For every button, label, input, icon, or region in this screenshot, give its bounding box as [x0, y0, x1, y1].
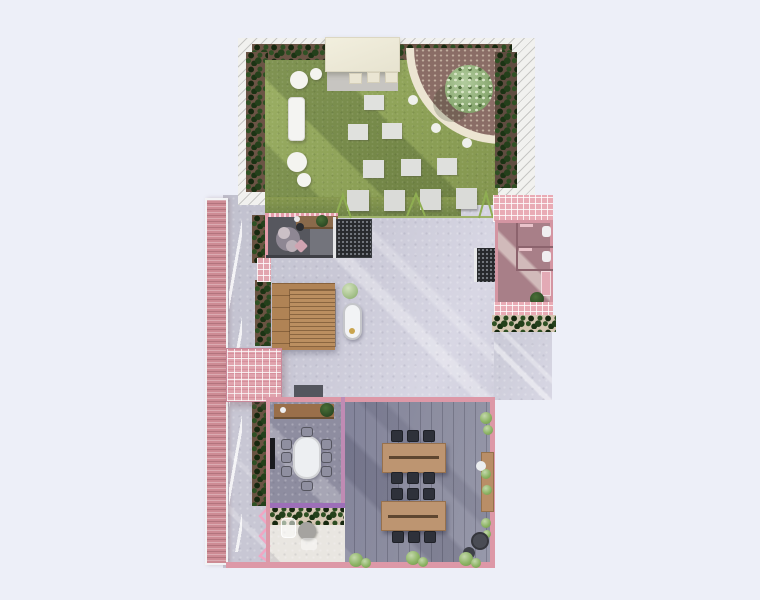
garden-boulder [408, 95, 418, 105]
credenza-ball [280, 407, 286, 413]
stepping-stone [348, 124, 368, 140]
meeting-chair [321, 439, 332, 450]
garden-pouf [290, 71, 308, 89]
toilet [542, 226, 551, 237]
canopy-stool [367, 72, 380, 83]
garden-boulder [462, 138, 472, 148]
meeting-chair [301, 481, 313, 491]
credenza-plant [320, 403, 334, 417]
stepping-stone [382, 123, 402, 139]
deck-bush [480, 412, 492, 424]
meeting-table [293, 436, 321, 479]
garden-pouf [297, 173, 311, 187]
garden-boulder [431, 123, 441, 133]
floor-plan-screenshot [0, 0, 760, 600]
deck-bush [483, 425, 493, 435]
stall-door [520, 224, 533, 227]
garden-canopy [325, 37, 400, 72]
garden-pouf [287, 152, 307, 172]
deck-bush [481, 518, 491, 528]
stepping-pad [456, 188, 477, 209]
planter-hedge [255, 280, 271, 346]
stall-door [519, 248, 532, 251]
slatted-unit [336, 219, 372, 258]
wall-meeting-bottom [266, 503, 345, 508]
dining-chair [391, 430, 403, 442]
grate-unit-frame [474, 248, 477, 282]
dining-chair [407, 488, 419, 500]
dining-table-groove [388, 515, 438, 518]
wall-meeting-right [341, 397, 345, 508]
bath-roof-tiles-top [493, 195, 553, 222]
plaid-canopy [226, 348, 282, 402]
meeting-chair [301, 427, 313, 437]
lounge-wall-left [265, 213, 268, 258]
lounge-desk-plant [316, 215, 328, 227]
lounge-side-table [296, 223, 304, 231]
dining-chair [391, 472, 403, 484]
deck-bush [418, 557, 428, 567]
meeting-chair [281, 466, 292, 477]
ghost-lounger [281, 518, 296, 538]
stepping-stone [364, 95, 384, 110]
wall-tv [270, 438, 275, 469]
stepping-stone [363, 160, 384, 178]
meeting-chair [281, 452, 292, 463]
floor-plan-render [0, 0, 760, 600]
dining-chair [407, 430, 419, 442]
toilet [542, 251, 551, 262]
concrete-terrace-right [494, 328, 552, 400]
lounge-pouf [278, 227, 290, 239]
oval-table [343, 303, 362, 340]
deck-bush [471, 558, 481, 568]
dining-chair [424, 531, 436, 543]
trellis-frame [405, 191, 427, 217]
stepping-pad [384, 190, 405, 211]
dining-chair [408, 531, 420, 543]
wall-lower-top [266, 397, 494, 402]
stepping-stone [437, 158, 457, 175]
dining-chair [423, 488, 435, 500]
meeting-chair [321, 452, 332, 463]
ghost-chair [301, 538, 317, 550]
bath-planter [492, 315, 556, 332]
dining-chair [407, 472, 419, 484]
deck-bush [482, 485, 492, 495]
garden-hedge-right [495, 52, 517, 188]
garden-lounger [288, 97, 305, 141]
wood-deck-steps [290, 290, 335, 346]
wall-courtyard-left [266, 503, 270, 567]
round-cafe-table [471, 532, 489, 550]
garden-tree [445, 65, 493, 113]
dining-chair [392, 531, 404, 543]
meeting-chair [321, 466, 332, 477]
canopy-stool [385, 72, 398, 83]
wall-meeting-left [266, 397, 270, 508]
canopy-stool [349, 73, 362, 84]
dining-table-groove [389, 456, 439, 459]
terrace-plant [342, 283, 358, 299]
deck-bush [481, 469, 491, 479]
dining-chair [391, 488, 403, 500]
garden-pouf [310, 68, 322, 80]
planter-pink-curb [257, 258, 271, 282]
deck-bush [361, 558, 371, 568]
dining-chair [423, 472, 435, 484]
meeting-chair [281, 439, 292, 450]
grate-unit [477, 248, 496, 282]
side-awning [205, 198, 228, 565]
lounge-wall-bottom [266, 255, 338, 258]
stepping-stone [401, 159, 421, 176]
lounge-desk-cup [294, 216, 300, 222]
bath-vanity [541, 271, 551, 296]
dining-chair [423, 430, 435, 442]
oval-table-pot [349, 328, 355, 334]
